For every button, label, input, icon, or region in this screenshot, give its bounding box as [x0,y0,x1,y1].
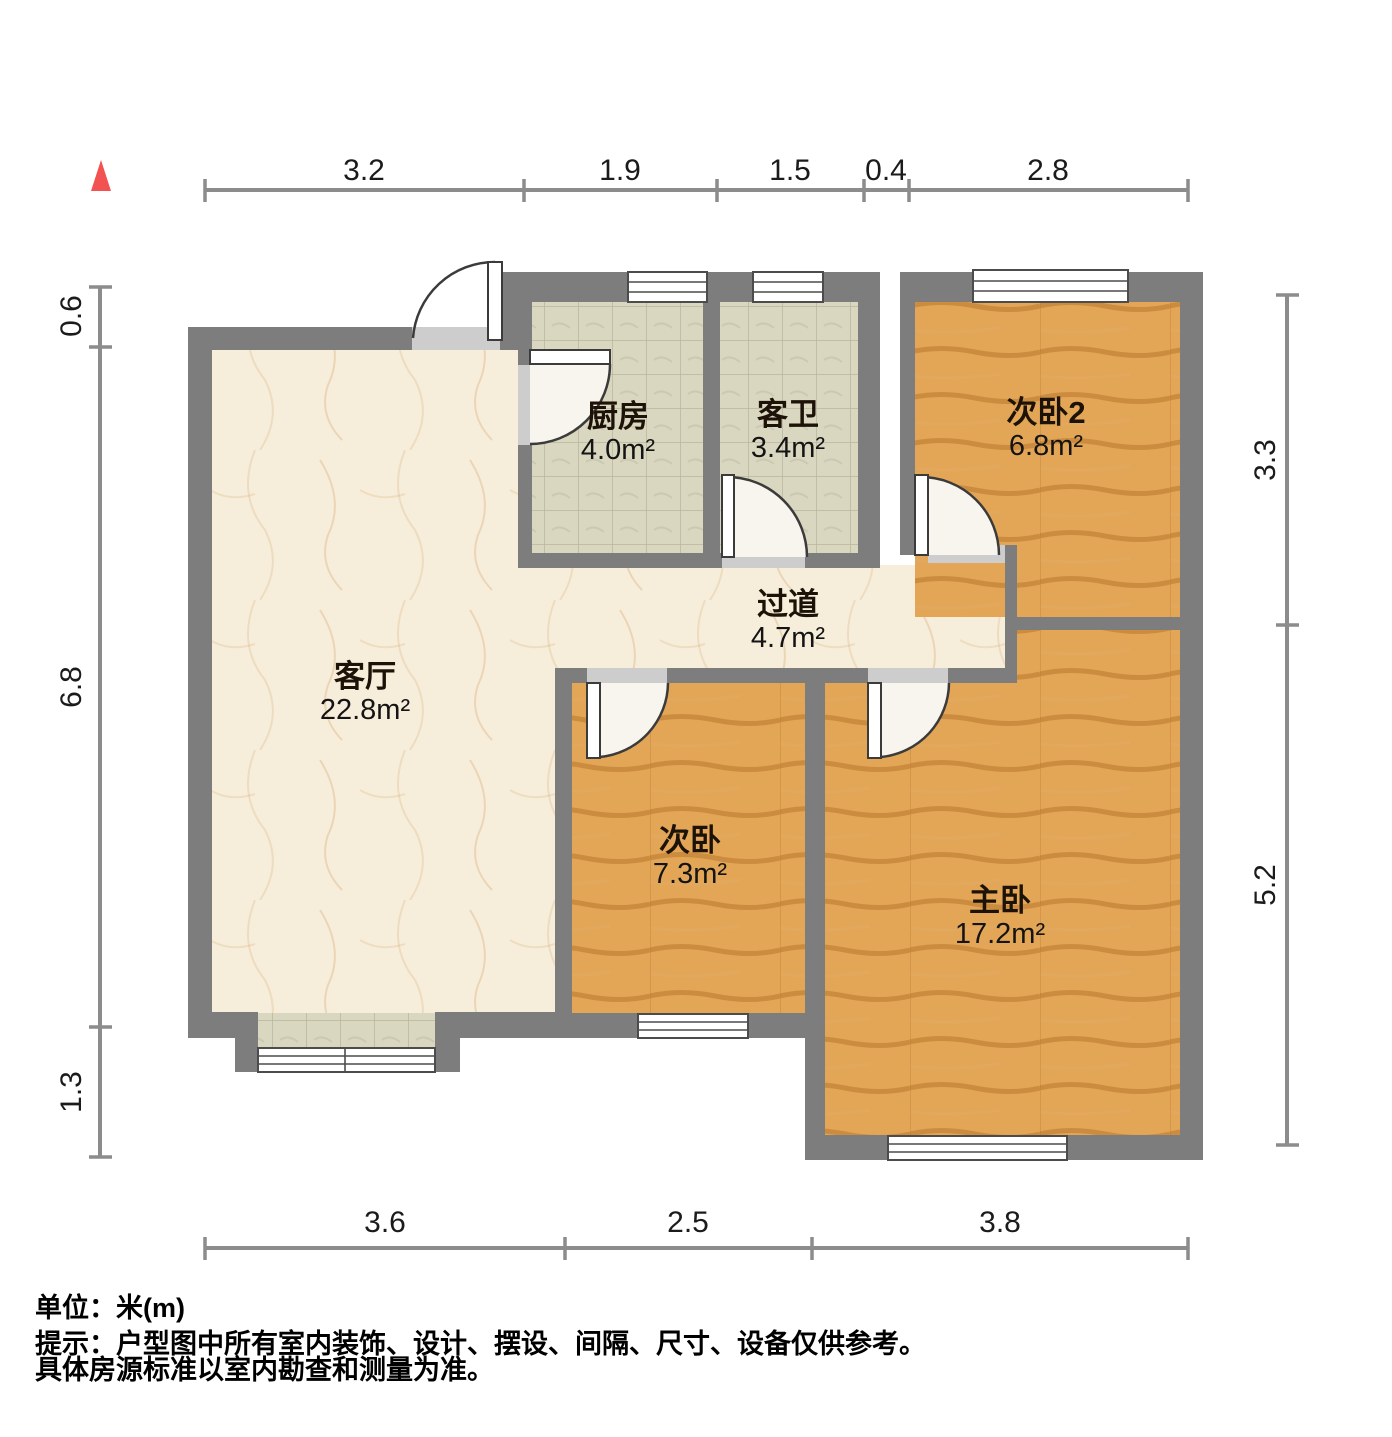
dim-bottom-3: 3.8 [979,1206,1021,1240]
room-label-bedroom: 次卧 7.3m² [653,824,727,891]
dim-left-2: 6.8 [55,666,89,708]
room-label-kitchen: 厨房 4.0m² [581,400,655,467]
dim-top-2: 1.9 [599,154,641,188]
hallway-name: 过道 [751,588,825,622]
dim-top-1: 3.2 [343,154,385,188]
bay-window [258,1048,435,1072]
bay-window-floor [258,1013,435,1050]
bedroom2-area: 6.8m² [1006,430,1085,463]
master-bedroom-name: 主卧 [955,884,1045,918]
bedroom-window [638,1014,748,1038]
bedroom2-name: 次卧2 [1006,396,1085,430]
master-bedroom-window [888,1136,1067,1160]
dim-bottom-1: 3.6 [364,1206,406,1240]
bedroom2-window [973,270,1128,302]
guest-bath-area: 3.4m² [751,432,825,465]
north-arrow-icon [91,160,111,191]
dim-top-3: 1.5 [769,154,811,188]
guest-bath-window [753,272,823,302]
dim-left-3: 1.3 [55,1071,89,1113]
bedroom-area: 7.3m² [653,858,727,891]
master-bedroom-area: 17.2m² [955,918,1045,951]
living-room-area: 22.8m² [320,694,410,727]
room-label-master-bedroom: 主卧 17.2m² [955,884,1045,951]
kitchen-area: 4.0m² [581,434,655,467]
dim-bottom-2: 2.5 [667,1206,709,1240]
dim-top-5: 2.8 [1027,154,1069,188]
guest-bath-name: 客卫 [751,398,825,432]
dim-right-2: 5.2 [1249,864,1283,906]
bedroom-name: 次卧 [653,824,727,858]
living-room-name: 客厅 [320,660,410,694]
dim-right-1: 3.3 [1249,439,1283,481]
tip-line-2: 具体房源标准以室内勘查和测量为准。 [35,1355,494,1385]
room-label-guest-bath: 客卫 3.4m² [751,398,825,465]
room-label-living-room: 客厅 22.8m² [320,660,410,727]
floor-plan-page: 3.2 1.9 1.5 0.4 2.8 3.6 2.5 3.8 0.6 6.8 … [0,0,1392,1437]
dim-top-4: 0.4 [865,154,907,188]
room-label-hallway: 过道 4.7m² [751,588,825,655]
dim-left-1: 0.6 [55,295,89,337]
unit-note: 单位：米(m) [35,1293,185,1323]
room-label-bedroom2: 次卧2 6.8m² [1006,396,1085,463]
hallway-area: 4.7m² [751,622,825,655]
kitchen-name: 厨房 [581,400,655,434]
master-bedroom-floor-ext [1017,630,1180,682]
kitchen-window [628,272,707,302]
